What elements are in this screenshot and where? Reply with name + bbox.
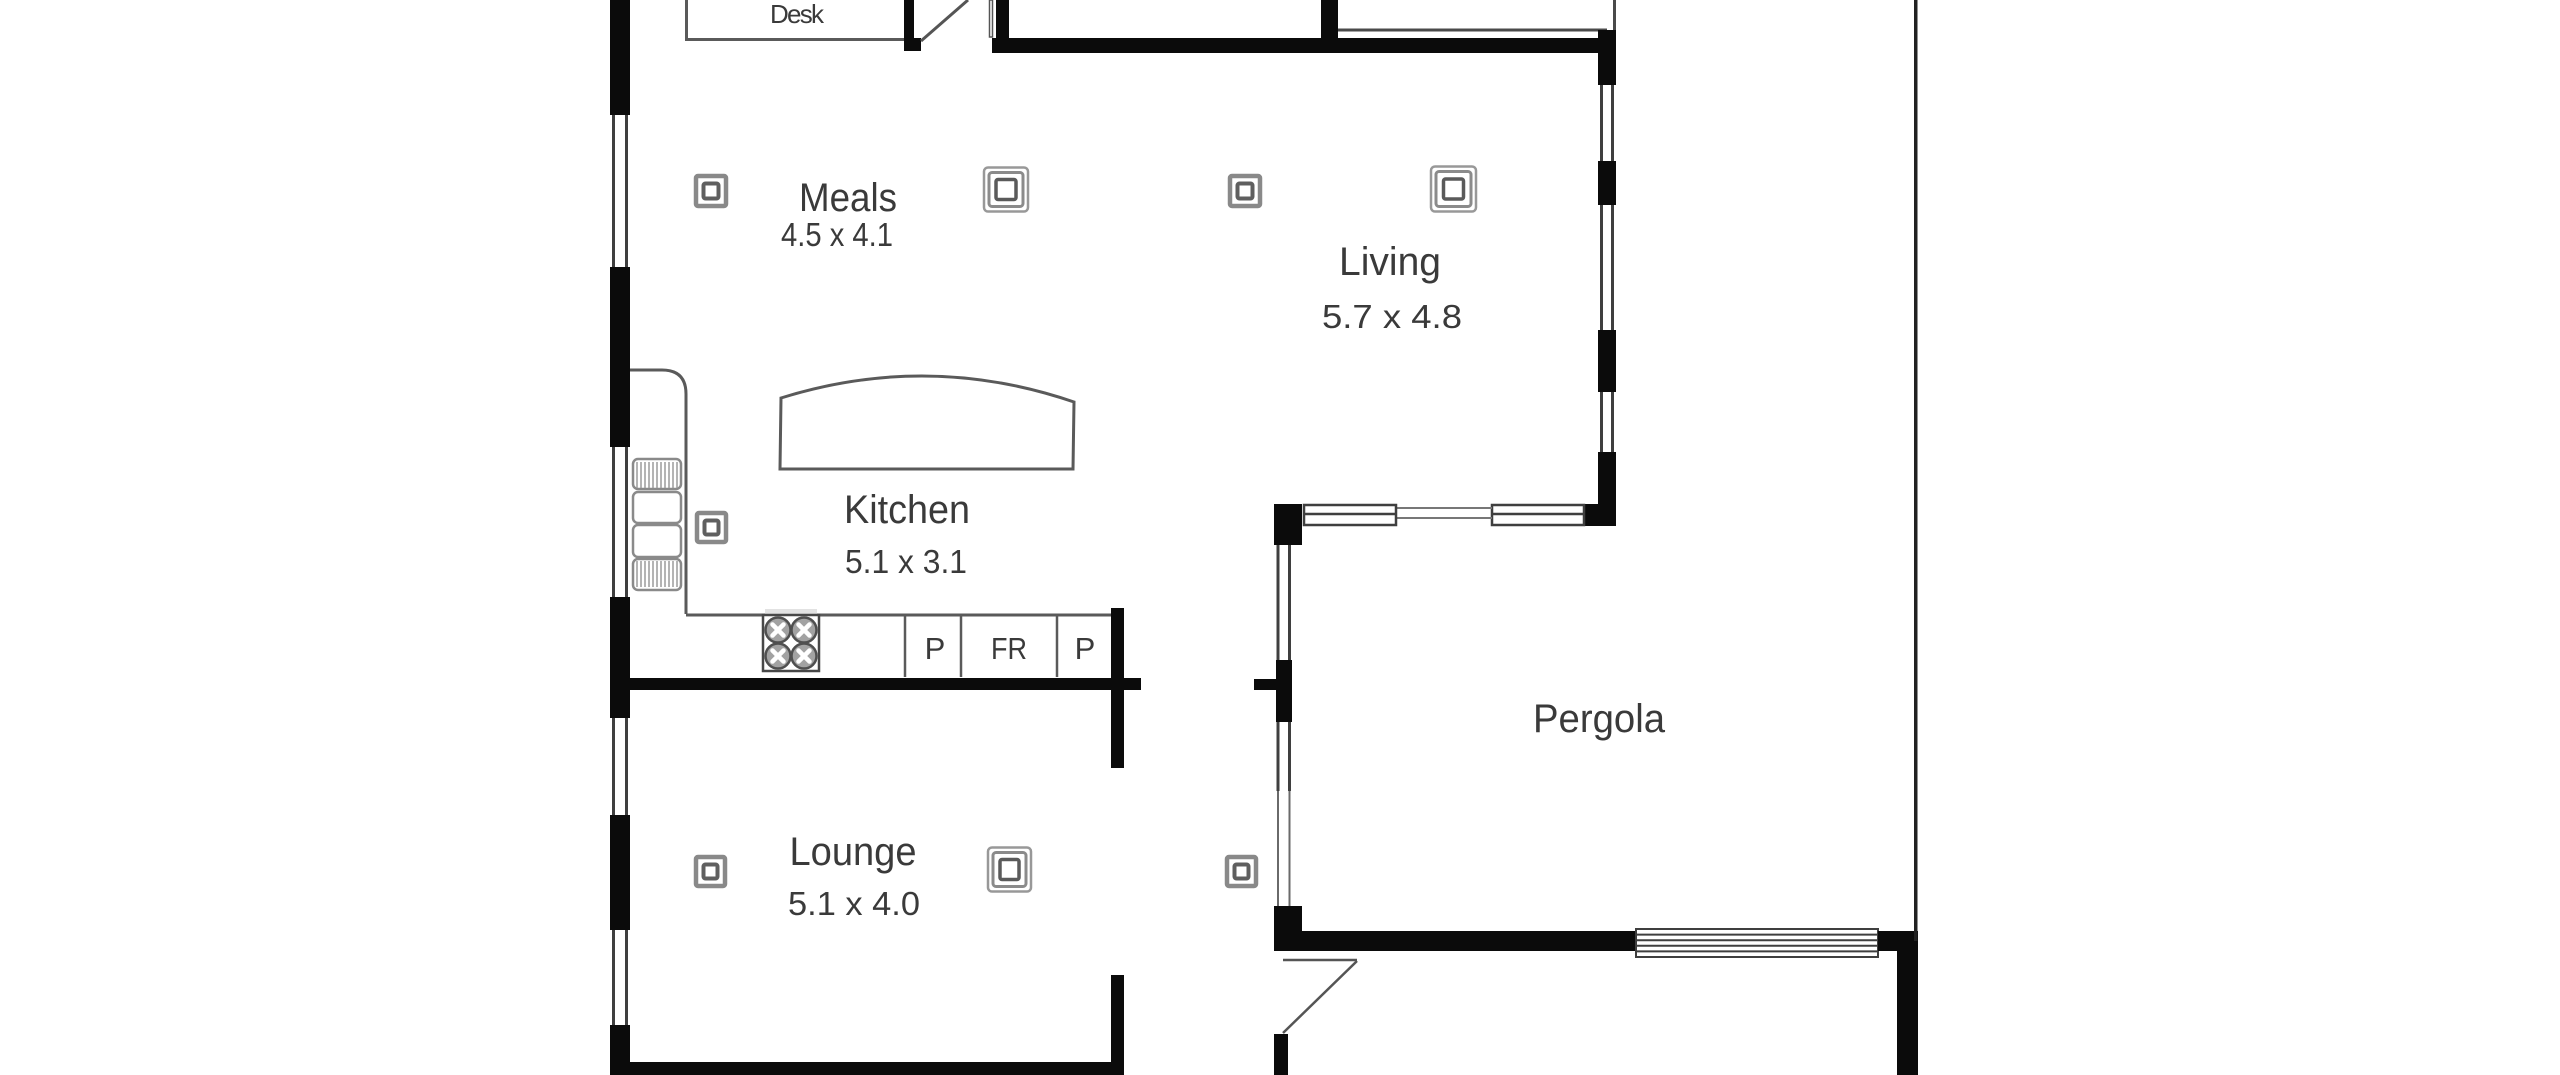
svg-text:Living: Living <box>1339 240 1441 284</box>
svg-text:P: P <box>1075 631 1096 666</box>
svg-text:5.7 x 4.8: 5.7 x 4.8 <box>1322 298 1462 335</box>
svg-text:P: P <box>925 631 946 666</box>
svg-text:Meals: Meals <box>799 176 897 220</box>
svg-text:Lounge: Lounge <box>790 830 917 874</box>
svg-text:Kitchen: Kitchen <box>844 488 970 532</box>
svg-text:FR: FR <box>991 631 1027 666</box>
svg-text:Desk: Desk <box>770 0 825 29</box>
svg-text:Pergola: Pergola <box>1533 697 1666 741</box>
svg-text:5.1 x 4.0: 5.1 x 4.0 <box>788 885 920 922</box>
svg-text:5.1 x 3.1: 5.1 x 3.1 <box>845 543 967 580</box>
svg-text:4.5 x 4.1: 4.5 x 4.1 <box>781 216 893 253</box>
